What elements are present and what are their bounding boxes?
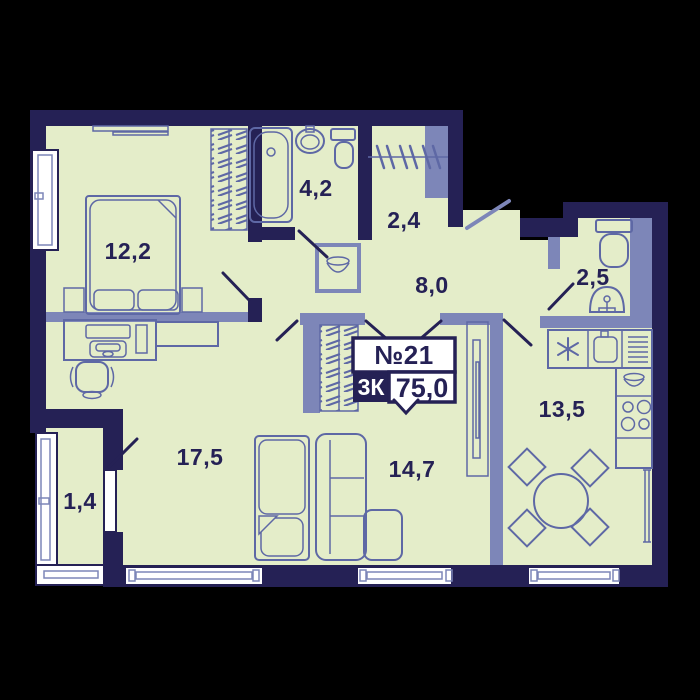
- window-bedroom2: [125, 567, 263, 585]
- room-area-label-storage: 2,4: [387, 207, 420, 233]
- room-area-label-living: 14,7: [389, 456, 436, 482]
- balcony-door-leaf: [104, 470, 116, 532]
- window-kitchen: [528, 567, 620, 585]
- room-area-label-balcony: 1,4: [63, 488, 96, 514]
- room-area-label-bedroom2: 17,5: [177, 444, 224, 470]
- badge-type: 3К: [358, 374, 386, 400]
- floor-plan-canvas: 12,2 4,2 2,4 8,0 2,5 13,5 14,7 17,5 1,4 …: [0, 0, 700, 700]
- unit-badge: №21 3К 75,0: [353, 338, 455, 413]
- window-living: [357, 567, 452, 585]
- room-area-label-wc: 2,5: [576, 264, 609, 290]
- room-area-label-bathroom: 4,2: [299, 175, 332, 201]
- badge-number: №21: [374, 340, 433, 370]
- window-bedroom: [32, 150, 58, 250]
- floor-plan: 12,2 4,2 2,4 8,0 2,5 13,5 14,7 17,5 1,4 …: [0, 0, 700, 700]
- badge-area: 75,0: [396, 373, 449, 403]
- wardrobe-bedroom: [211, 129, 247, 230]
- room-area-label-kitchen: 13,5: [539, 396, 586, 422]
- room-area-label-hallway: 8,0: [415, 272, 448, 298]
- room-area-label-bedroom: 12,2: [105, 238, 152, 264]
